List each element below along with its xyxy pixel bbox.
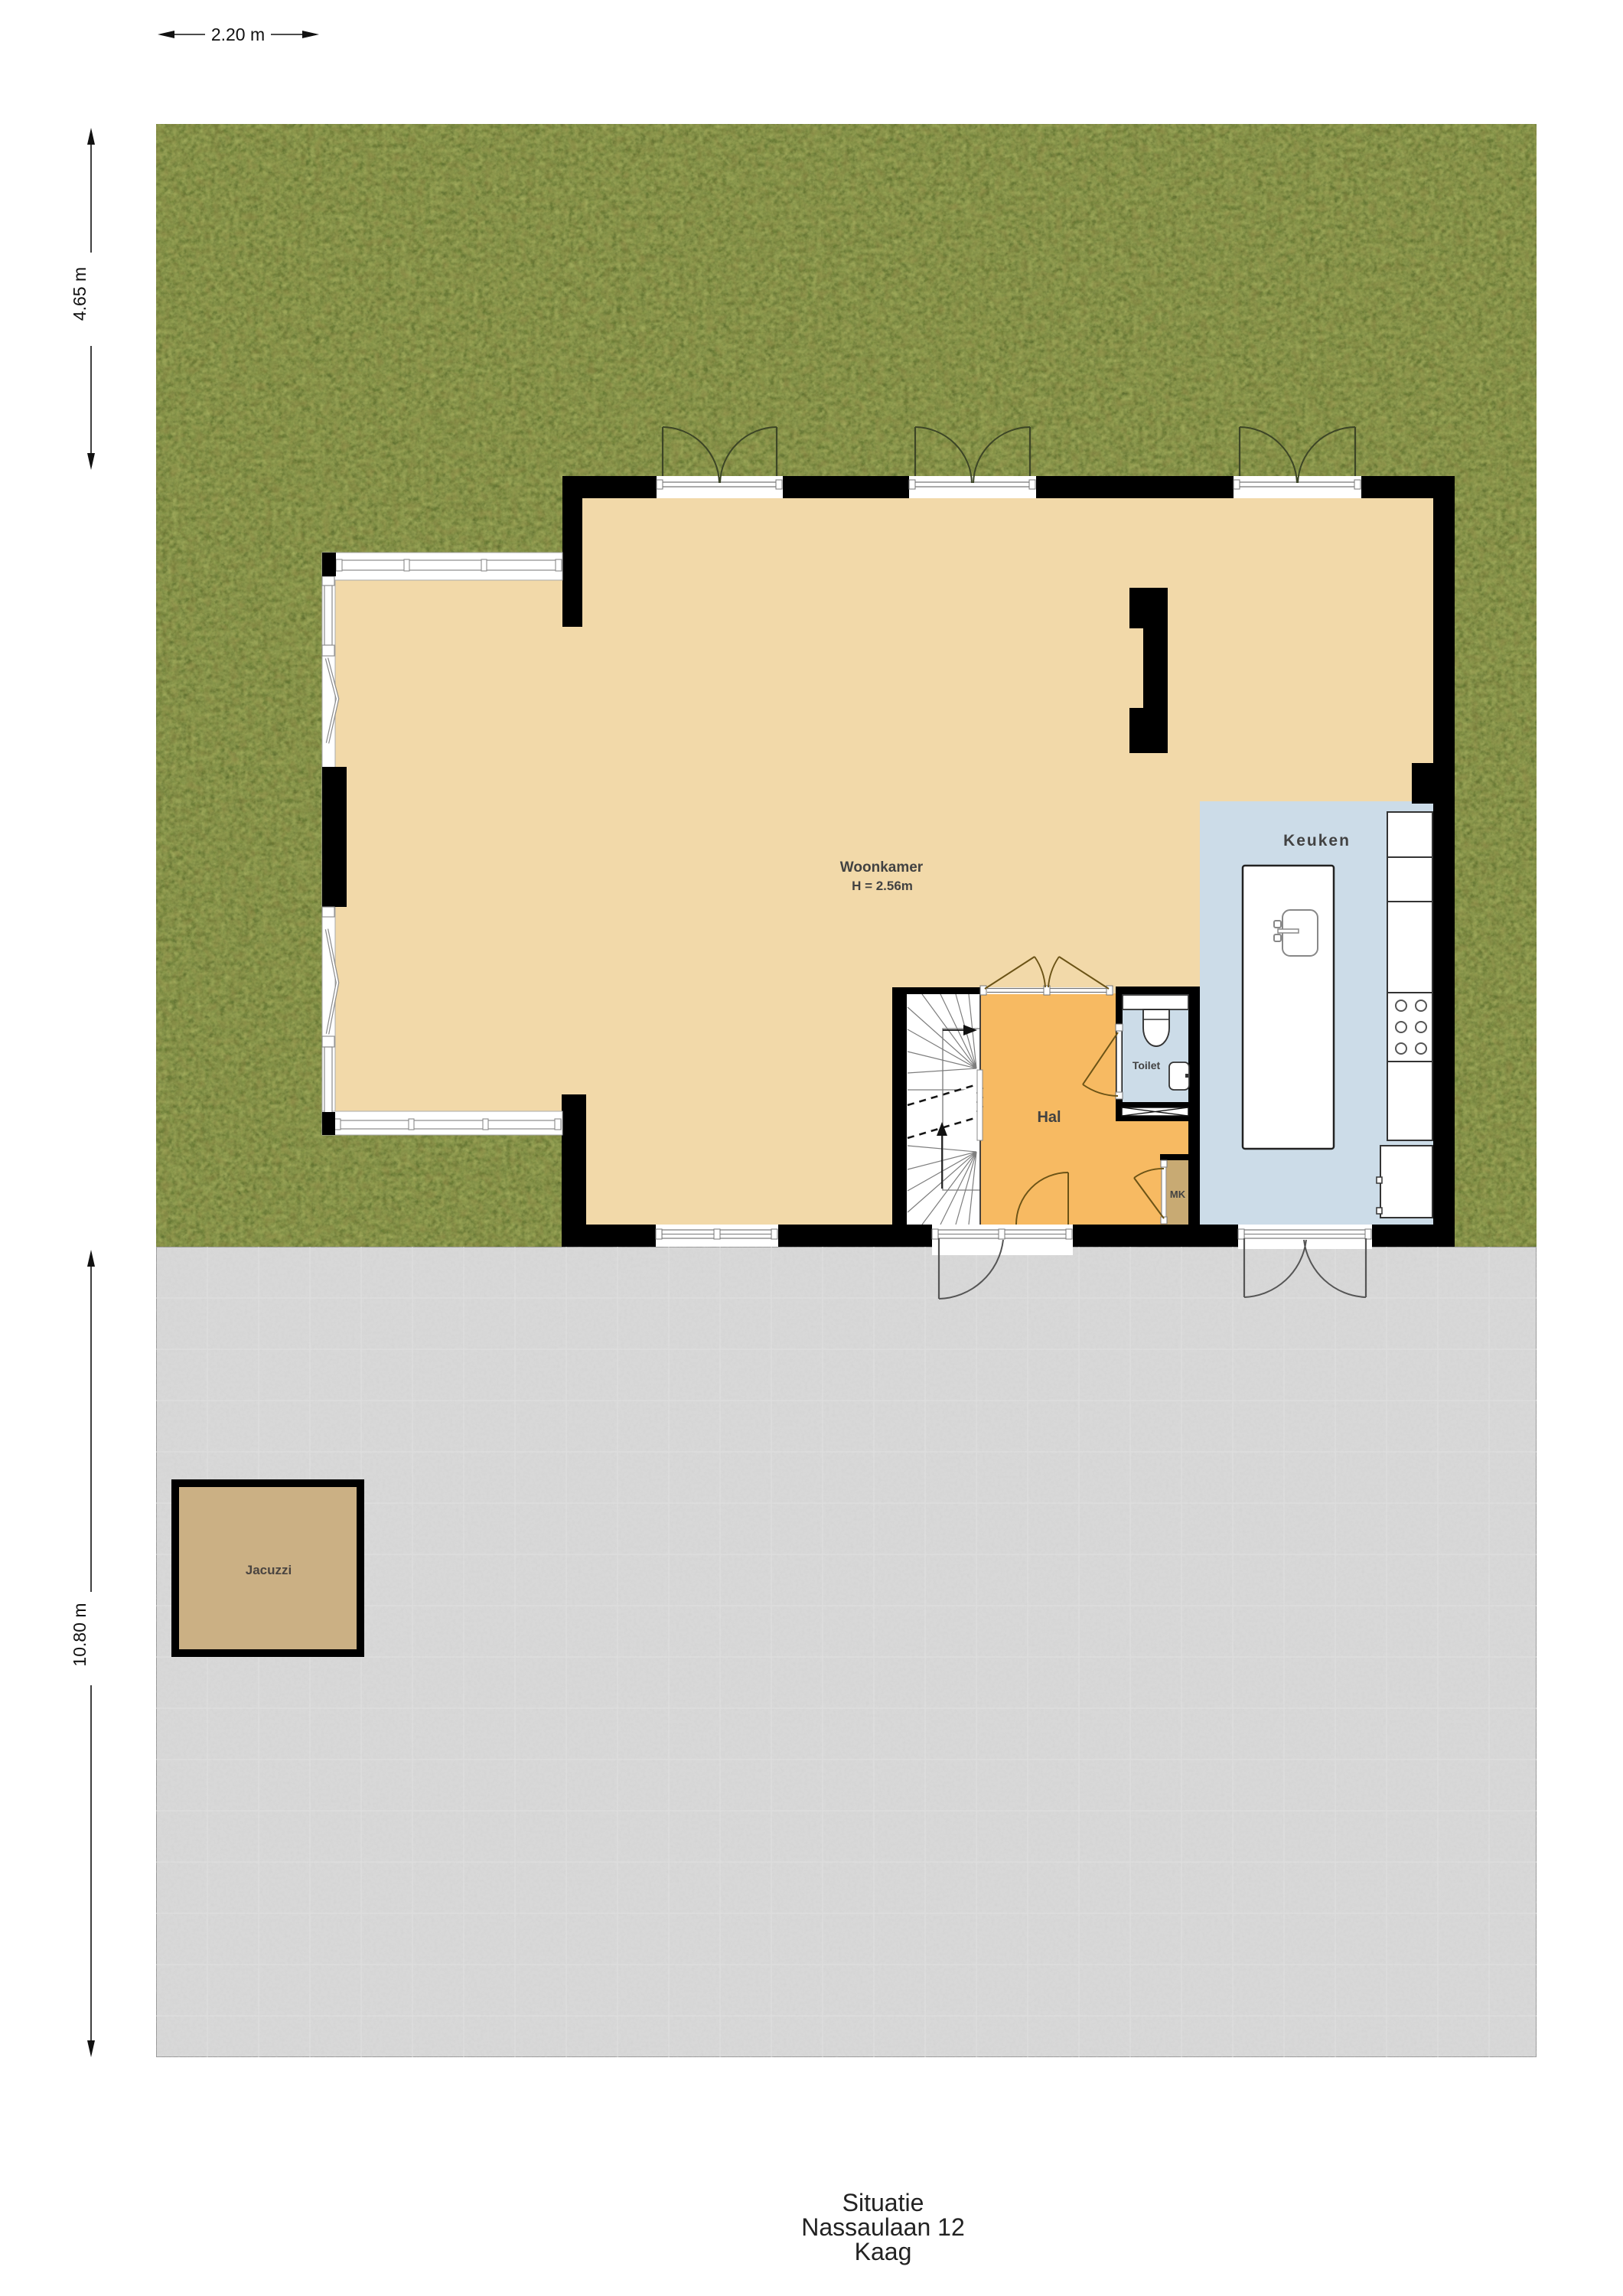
svg-text:Jacuzzi: Jacuzzi (246, 1563, 292, 1577)
svg-text:MK: MK (1170, 1189, 1186, 1200)
svg-text:Woonkamer: Woonkamer (840, 859, 924, 876)
svg-text:Nassaulaan 12: Nassaulaan 12 (801, 2213, 964, 2241)
svg-text:Kaag: Kaag (855, 2238, 912, 2265)
svg-text:4.65 m: 4.65 m (70, 267, 90, 321)
svg-text:Hal: Hal (1037, 1109, 1061, 1126)
svg-text:Keuken: Keuken (1283, 832, 1351, 850)
svg-text:10.80 m: 10.80 m (70, 1603, 90, 1666)
svg-text:Situatie: Situatie (842, 2189, 924, 2216)
svg-text:H = 2.56m: H = 2.56m (852, 879, 913, 893)
svg-text:Toilet: Toilet (1133, 1059, 1161, 1071)
svg-text:2.20 m: 2.20 m (211, 24, 265, 44)
